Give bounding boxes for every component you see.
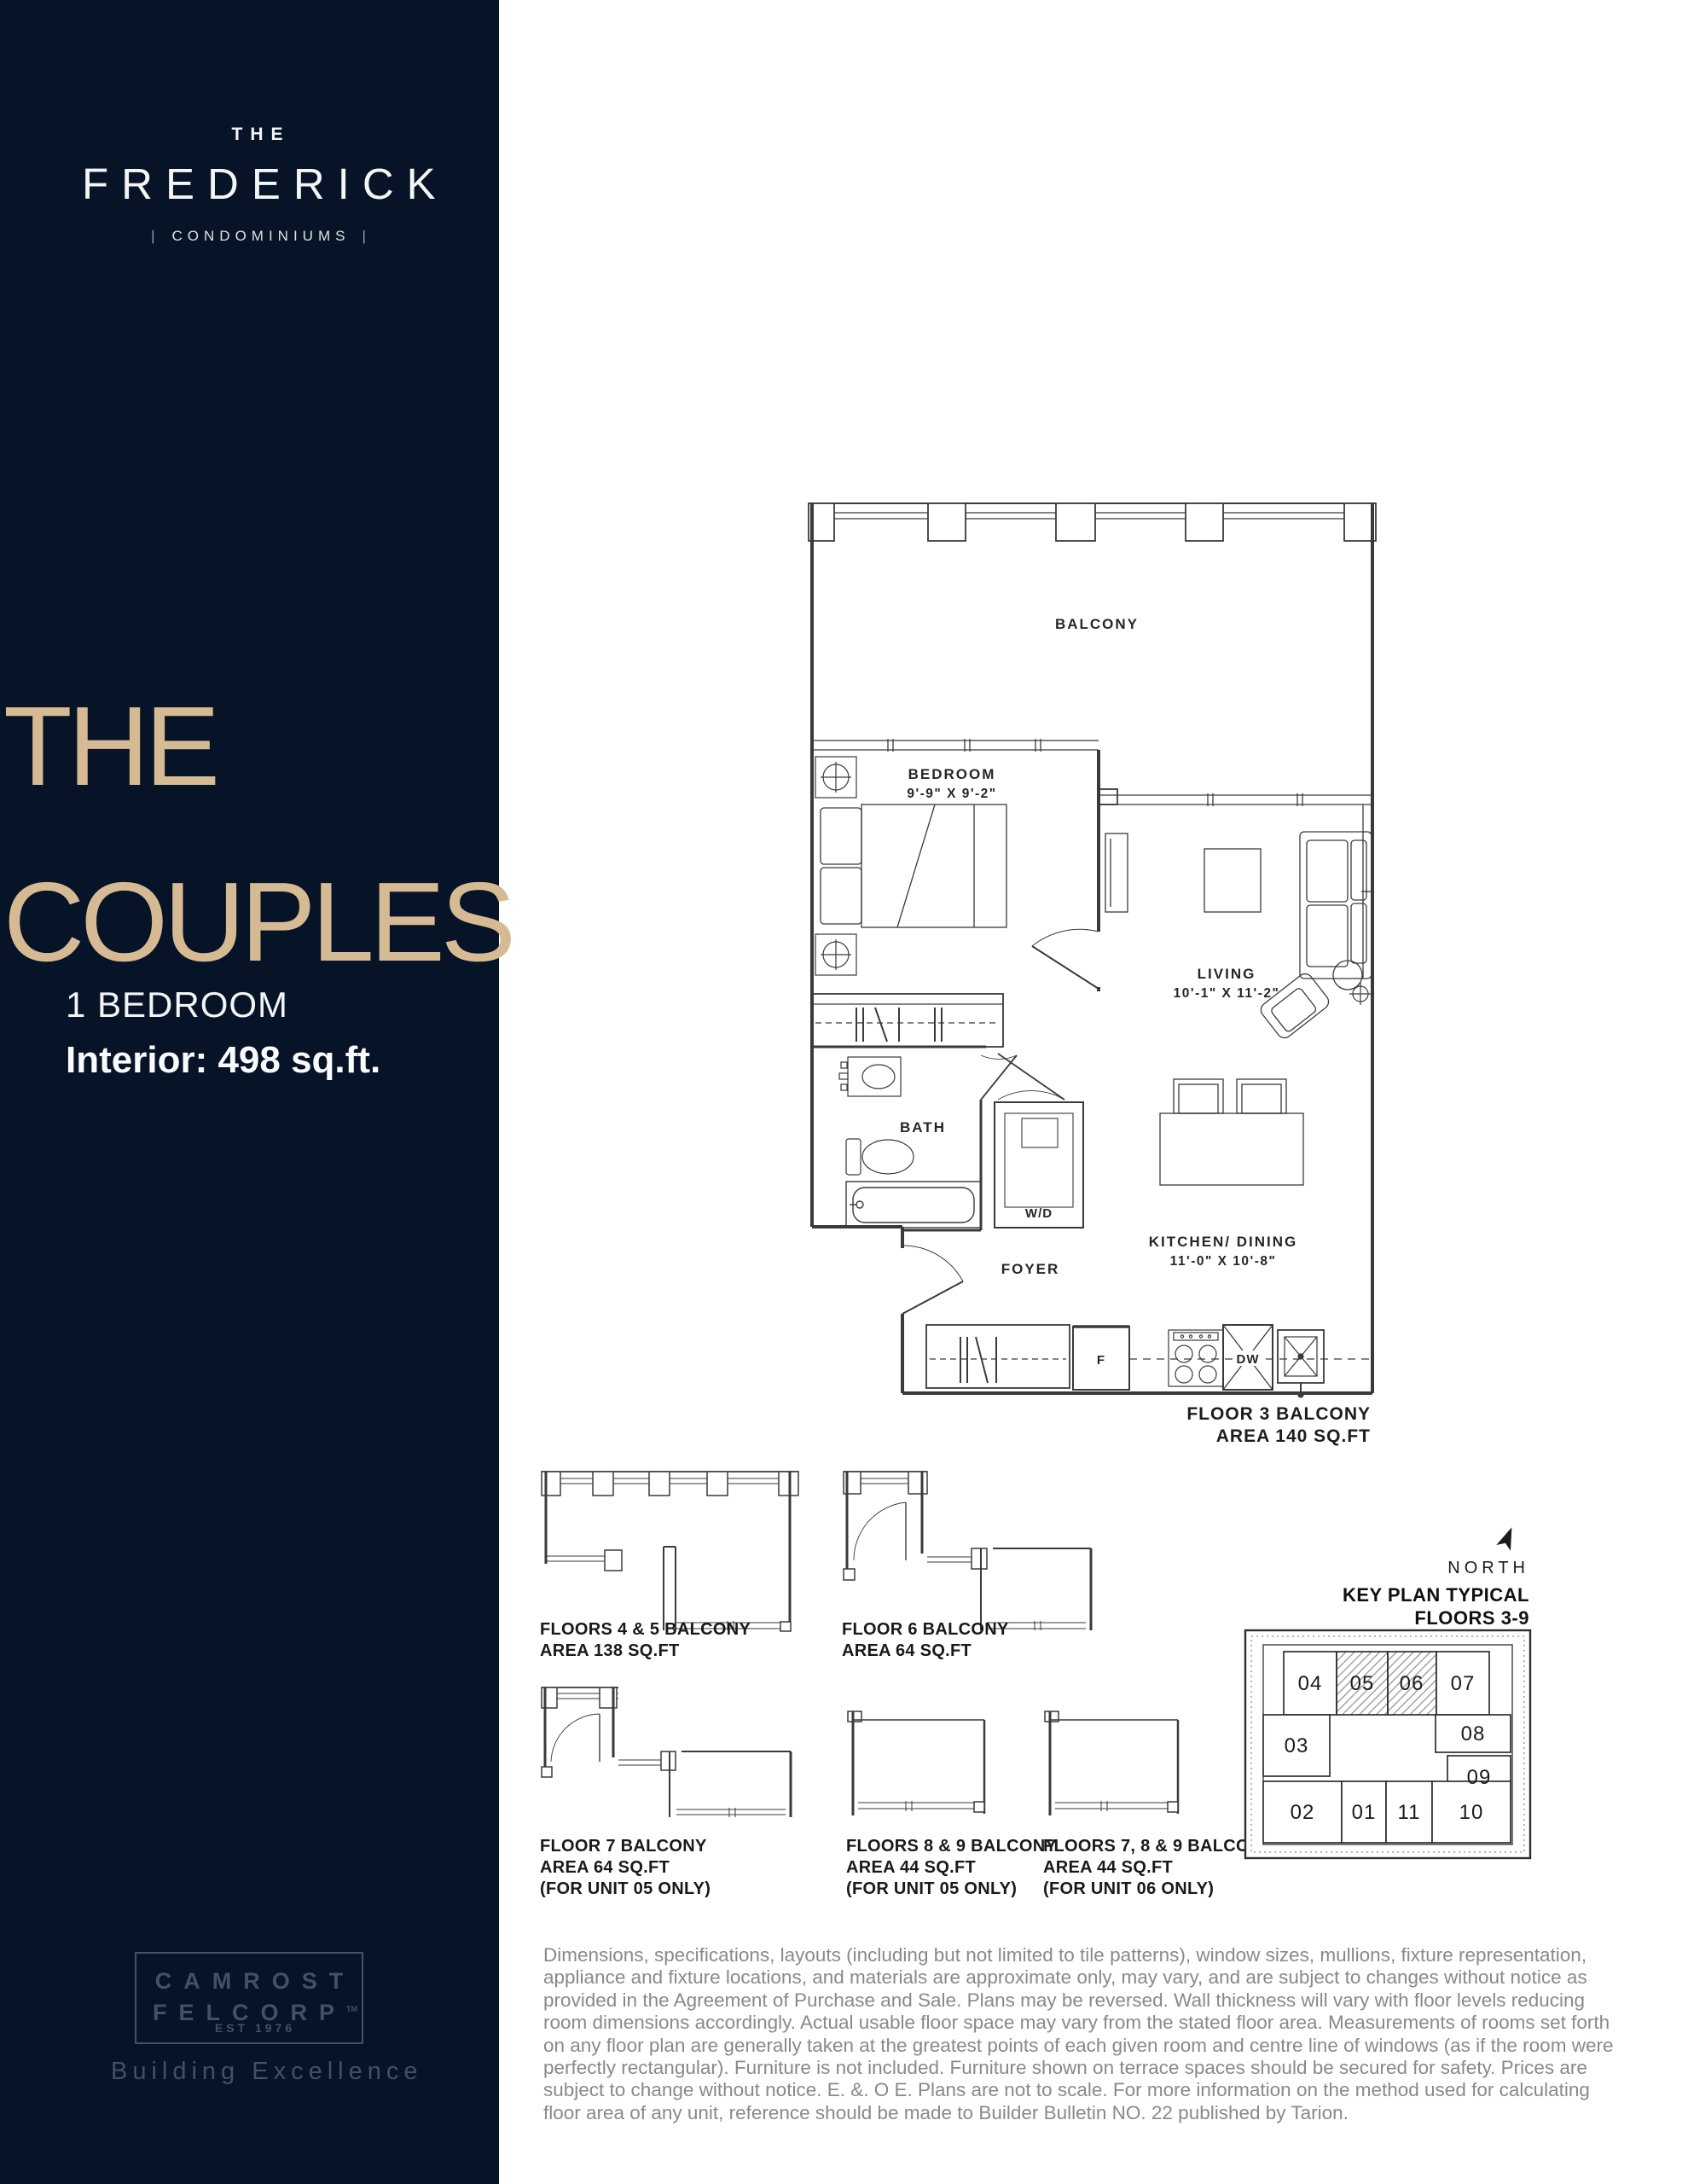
- kitchen-sink: [1278, 1330, 1324, 1397]
- unit-number: 06: [1400, 1672, 1424, 1695]
- caption-line: FLOOR 7 BALCONY: [540, 1836, 711, 1857]
- armchair: [1258, 971, 1331, 1041]
- developer-name-line2: FELCORPTM EST 1976: [136, 2000, 362, 2026]
- caption-line: FLOORS 4 & 5 BALCONY: [540, 1619, 751, 1641]
- living-dims: 10'-1" X 11'-2": [1174, 986, 1280, 1001]
- caption-line: (FOR UNIT 05 ONLY): [846, 1879, 1057, 1900]
- unit-number: 04: [1298, 1672, 1323, 1695]
- dining-table: [1160, 1079, 1303, 1185]
- caption-line: FLOORS 7, 8 & 9 BALCONY: [1043, 1836, 1273, 1857]
- unit-number: 02: [1291, 1801, 1315, 1824]
- brochure-page: THE FREDERICK |CONDOMINIUMS| THE COUPLES…: [0, 0, 1688, 2184]
- balcony-label: BALCONY: [1055, 616, 1139, 632]
- brand-logo-the: THE: [82, 125, 440, 145]
- kitchen-dims: 11'-0" X 10'-8": [1170, 1254, 1277, 1269]
- interior-area: Interior: 498 sq.ft.: [66, 1039, 380, 1082]
- tagline-text: CONDOMINIUMS: [172, 228, 351, 244]
- balcony-plan-floors-7-8-9: [1043, 1706, 1184, 1821]
- kitchen-label: KITCHEN/ DINING: [1149, 1234, 1298, 1250]
- unit-number: 07: [1451, 1672, 1476, 1695]
- sofa: [1300, 832, 1372, 979]
- coffee-table: [1204, 849, 1261, 912]
- caption-floor-6: FLOOR 6 BALCONY AREA 64 SQ.FT: [842, 1619, 1009, 1662]
- caption-line: AREA 64 SQ.FT: [540, 1857, 711, 1879]
- tagline-right-bar: |: [362, 228, 370, 244]
- foyer-closet: [926, 1325, 1070, 1388]
- balcony-plan-floors-8-9: [846, 1706, 991, 1821]
- legal-disclaimer: Dimensions, specifications, layouts (inc…: [543, 1944, 1629, 2124]
- keyplan-title-line2: FLOORS 3-9: [1273, 1606, 1529, 1629]
- bedroom-dims: 9'-9" X 9'-2": [907, 787, 996, 801]
- living-label: LIVING: [1198, 966, 1256, 982]
- bedroom-count: 1 BEDROOM: [66, 985, 288, 1025]
- developer-logo: CAMROST FELCORPTM EST 1976: [135, 1952, 363, 2044]
- bath-label: BATH: [900, 1119, 946, 1136]
- fridge-label: F: [1097, 1353, 1105, 1368]
- developer-est: EST 1976: [193, 2021, 305, 2035]
- developer-tagline: Building Excellence: [111, 2058, 384, 2086]
- caption-floor-7: FLOOR 7 BALCONY AREA 64 SQ.FT (FOR UNIT …: [540, 1836, 711, 1900]
- brand-logo-tagline: |CONDOMINIUMS|: [82, 228, 440, 245]
- bed: [821, 804, 1006, 927]
- balcony-railing-posts: [809, 503, 1376, 541]
- tv-unit: [1105, 834, 1128, 912]
- floor3-balcony-note: FLOOR 3 BALCONY AREA 140 SQ.FT: [1115, 1403, 1371, 1448]
- north-arrow-icon: [1488, 1524, 1524, 1554]
- caption-line: AREA 44 SQ.FT: [846, 1857, 1057, 1879]
- bedroom-window: [812, 739, 1099, 752]
- foyer-label: FOYER: [1001, 1261, 1060, 1277]
- developer-name-line1: CAMROST: [136, 1968, 362, 1995]
- caption-floors-8-9: FLOORS 8 & 9 BALCONY AREA 44 SQ.FT (FOR …: [846, 1836, 1057, 1900]
- keyplan: 04 05 06 07 03 08 09 02 01 11 10: [1243, 1628, 1533, 1861]
- unit-number: 03: [1285, 1734, 1309, 1757]
- bath-sink: [839, 1057, 901, 1096]
- balcony-plan-floor-7: [540, 1685, 800, 1821]
- brand-logo-name: FREDERICK: [82, 159, 440, 209]
- bedroom-label: BEDROOM: [908, 766, 996, 782]
- wd-label: W/D: [1025, 1206, 1053, 1221]
- bathtub: [846, 1182, 981, 1228]
- caption-line: FLOORS 8 & 9 BALCONY: [846, 1836, 1057, 1857]
- brand-logo: THE FREDERICK |CONDOMINIUMS|: [82, 125, 440, 245]
- entry-door: [902, 1246, 963, 1314]
- stove: [1169, 1330, 1223, 1386]
- north-label: NORTH: [1359, 1559, 1529, 1578]
- caption-line: AREA 138 SQ.FT: [540, 1641, 751, 1662]
- unit-number: 10: [1459, 1801, 1484, 1824]
- dishwasher-label: DW: [1237, 1352, 1260, 1367]
- bedroom-closet: [812, 994, 1003, 1047]
- toilet: [846, 1139, 914, 1175]
- unit-number: 09: [1467, 1766, 1492, 1789]
- balcony-plan-floors-4-5: [540, 1468, 800, 1635]
- caption-line: AREA 44 SQ.FT: [1043, 1857, 1273, 1879]
- unit-number: 11: [1398, 1801, 1421, 1824]
- unit-number: 05: [1350, 1672, 1375, 1695]
- caption-floors-7-8-9: FLOORS 7, 8 & 9 BALCONY AREA 44 SQ.FT (F…: [1043, 1836, 1273, 1900]
- bedroom-door: [1032, 929, 1099, 989]
- caption-line: (FOR UNIT 05 ONLY): [540, 1879, 711, 1900]
- floor3-balcony-line2: AREA 140 SQ.FT: [1115, 1426, 1371, 1448]
- keyplan-title-line1: KEY PLAN TYPICAL: [1273, 1583, 1529, 1606]
- floor3-balcony-line1: FLOOR 3 BALCONY: [1115, 1403, 1371, 1426]
- developer-trademark: TM: [346, 2005, 357, 2013]
- tagline-left-bar: |: [151, 228, 160, 244]
- caption-line: (FOR UNIT 06 ONLY): [1043, 1879, 1273, 1900]
- caption-line: FLOOR 6 BALCONY: [842, 1619, 1009, 1641]
- plan-title: THE COUPLES: [3, 659, 515, 1010]
- ceiling-light-bedroom-bottom: [815, 934, 856, 975]
- ceiling-light-bedroom-top: [815, 757, 856, 798]
- ceiling-light-living: [1349, 983, 1372, 1005]
- sidebar: THE FREDERICK |CONDOMINIUMS| THE COUPLES…: [0, 0, 499, 2184]
- living-window: [1099, 789, 1372, 979]
- caption-floors-4-5: FLOORS 4 & 5 BALCONY AREA 138 SQ.FT: [540, 1619, 751, 1662]
- plan-title-line1: THE: [3, 659, 515, 834]
- unit-number: 08: [1461, 1722, 1486, 1745]
- keyplan-title: KEY PLAN TYPICAL FLOORS 3-9: [1273, 1583, 1529, 1629]
- hall-door: [998, 1054, 1064, 1100]
- caption-line: AREA 64 SQ.FT: [842, 1641, 1009, 1662]
- bath-walls: [812, 1047, 986, 1230]
- unit-number: 01: [1352, 1801, 1377, 1824]
- balcony-plan-floor-6: [842, 1468, 1098, 1635]
- main-floorplan: BALCONY BEDROOM 9'-9" X 9'-2" LIVING 10'…: [807, 501, 1378, 1401]
